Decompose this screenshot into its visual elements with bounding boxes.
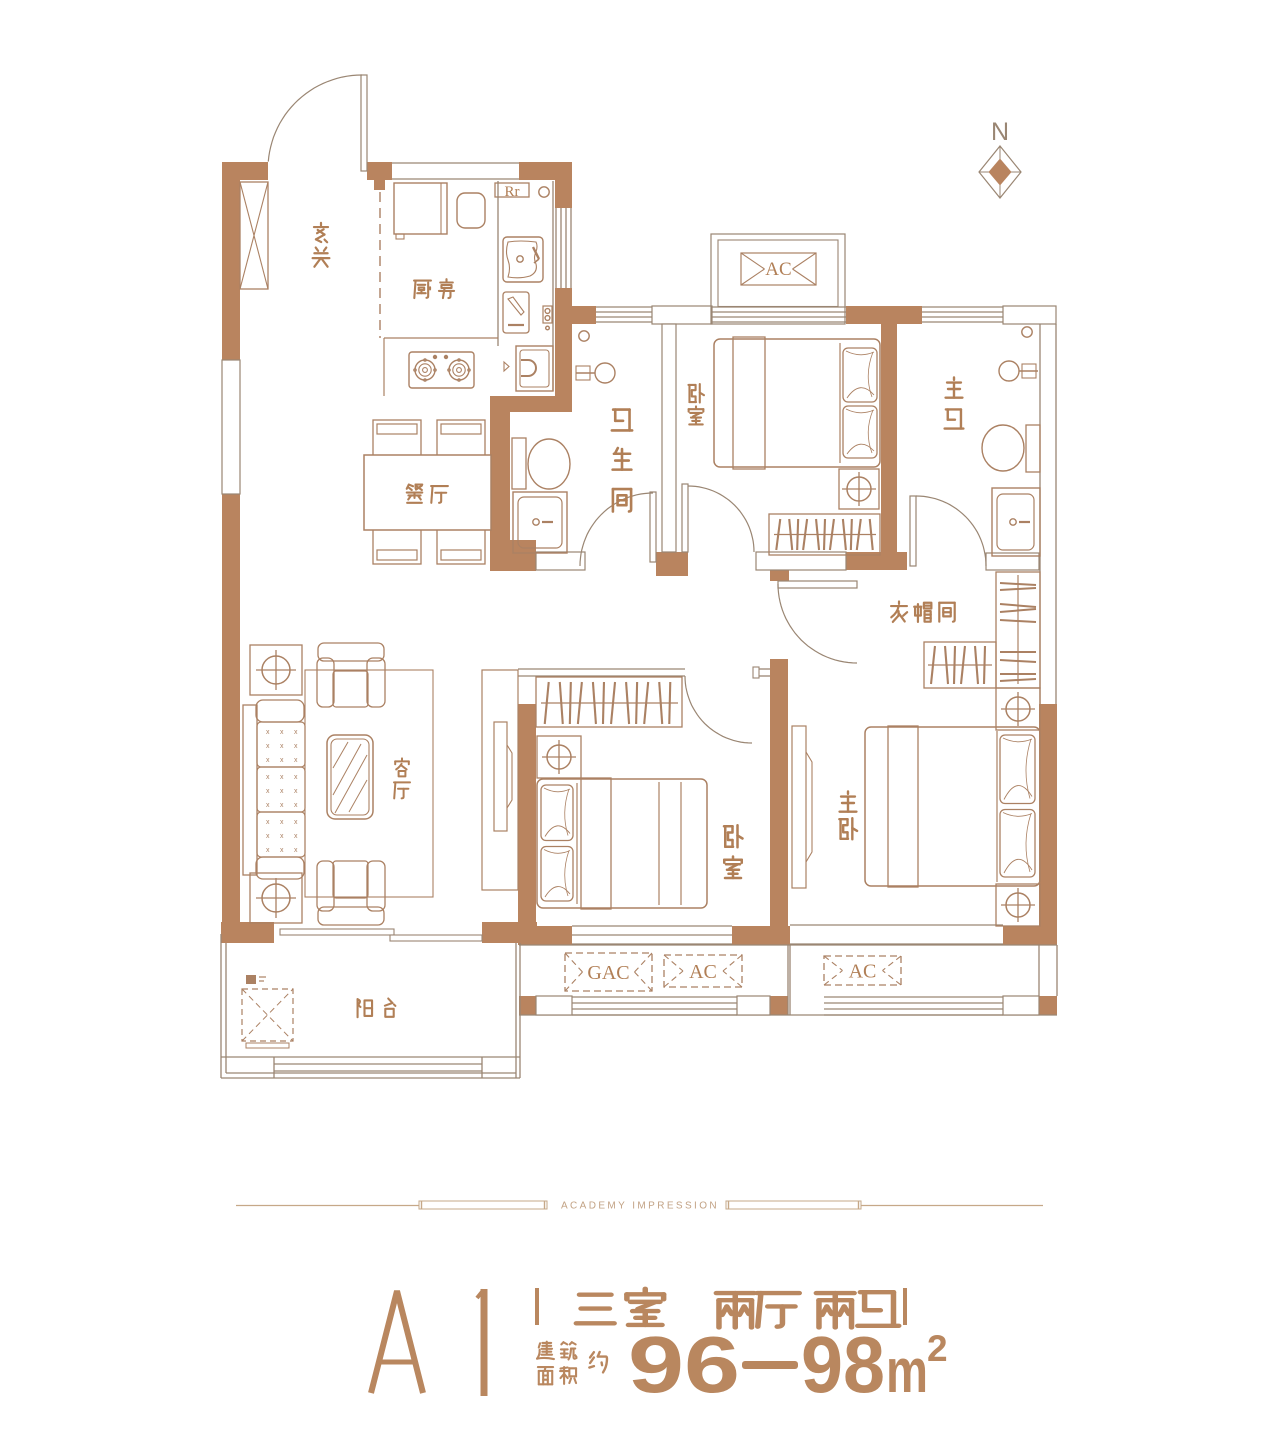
svg-text:AC: AC xyxy=(689,961,717,983)
svg-text:x: x xyxy=(280,788,284,795)
svg-text:AC: AC xyxy=(849,961,877,983)
svg-text:x: x xyxy=(294,757,298,764)
svg-text:98: 98 xyxy=(801,1320,885,1409)
svg-text:x: x xyxy=(280,774,284,781)
svg-text:x: x xyxy=(266,774,270,781)
svg-text:x: x xyxy=(294,802,298,809)
svg-text:x: x xyxy=(266,819,270,826)
svg-text:x: x xyxy=(266,729,270,736)
svg-text:x: x xyxy=(280,847,284,854)
svg-text:x: x xyxy=(280,802,284,809)
svg-text:GAC: GAC xyxy=(587,962,629,984)
svg-text:x: x xyxy=(266,757,270,764)
svg-text:x: x xyxy=(280,743,284,750)
svg-text:x: x xyxy=(280,729,284,736)
svg-text:96: 96 xyxy=(628,1320,740,1409)
svg-text:x: x xyxy=(294,729,298,736)
svg-text:x: x xyxy=(294,743,298,750)
svg-text:x: x xyxy=(294,774,298,781)
svg-text:x: x xyxy=(294,847,298,854)
svg-text:2: 2 xyxy=(927,1328,948,1369)
svg-text:m: m xyxy=(886,1337,928,1406)
svg-text:x: x xyxy=(266,743,270,750)
svg-text:x: x xyxy=(280,757,284,764)
svg-text:x: x xyxy=(266,788,270,795)
svg-text:x: x xyxy=(266,833,270,840)
svg-text:x: x xyxy=(266,802,270,809)
svg-text:x: x xyxy=(294,833,298,840)
svg-text:ACADEMY IMPRESSION: ACADEMY IMPRESSION xyxy=(561,1201,719,1212)
svg-text:AC: AC xyxy=(765,259,791,280)
svg-text:x: x xyxy=(294,788,298,795)
svg-text:Rr: Rr xyxy=(505,184,520,200)
svg-text:N: N xyxy=(991,118,1009,146)
svg-text:x: x xyxy=(280,819,284,826)
svg-text:x: x xyxy=(266,847,270,854)
svg-text:x: x xyxy=(280,833,284,840)
svg-text:x: x xyxy=(294,819,298,826)
